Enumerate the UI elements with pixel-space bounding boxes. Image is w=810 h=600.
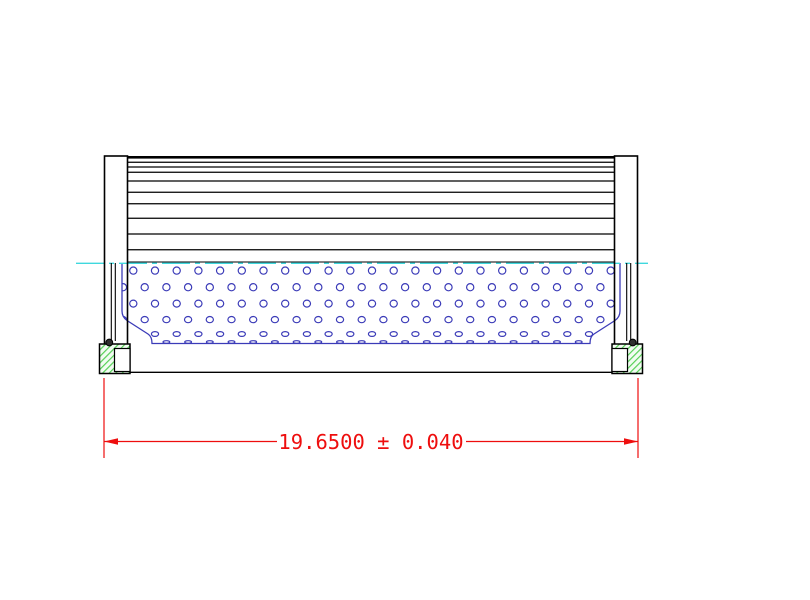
perforation-hole xyxy=(489,341,496,344)
perforation-hole xyxy=(293,317,300,323)
perforation-hole xyxy=(390,267,397,274)
perforation-hole xyxy=(368,332,375,337)
length-dimension: 19.6500 ± 0.040 xyxy=(104,378,638,458)
perforation-hole xyxy=(228,317,235,323)
perforation-hole xyxy=(228,341,235,344)
perforation-hole xyxy=(130,267,137,274)
perforation-hole xyxy=(303,300,310,307)
perforation-hole xyxy=(597,341,604,344)
pleat-top-edge xyxy=(128,156,615,159)
perforation-hole xyxy=(173,300,180,307)
perforation-hole xyxy=(217,332,224,337)
left-seal-flange xyxy=(100,339,131,373)
perforation-hole xyxy=(412,300,419,307)
perforation-hole xyxy=(575,284,582,291)
perforation-hole xyxy=(412,332,419,337)
perforation-hole xyxy=(185,341,192,344)
perforation-hole xyxy=(358,341,365,344)
perforation-hole xyxy=(303,267,310,274)
left-oring xyxy=(106,339,113,346)
perforation-hole xyxy=(477,267,484,274)
perforation-hole xyxy=(163,341,170,344)
left-flange-notch xyxy=(115,349,131,372)
perforation-hole xyxy=(532,284,539,291)
perforation-hole xyxy=(195,267,202,274)
perforation-hole xyxy=(520,300,527,307)
perforation-hole xyxy=(185,284,192,291)
perforation-hole xyxy=(434,267,441,274)
perforation-hole xyxy=(250,284,257,291)
perforation-hole xyxy=(238,300,245,307)
perforation-hole xyxy=(325,300,332,307)
perforation-hole xyxy=(206,317,213,323)
perforation-hole xyxy=(564,332,571,337)
perforation-hole xyxy=(195,332,202,337)
perforation-hole xyxy=(358,284,365,291)
perforation-hole xyxy=(336,317,343,323)
perforation-hole xyxy=(532,317,539,323)
perforation-hole xyxy=(130,332,137,337)
perforation-hole xyxy=(412,267,419,274)
perforation-hole xyxy=(402,284,409,291)
perforation-hole xyxy=(315,284,322,291)
perforation-hole xyxy=(554,341,561,344)
perforation-hole xyxy=(564,300,571,307)
perforation-hole xyxy=(260,332,267,337)
perforation-hole xyxy=(467,284,474,291)
perforation-hole xyxy=(390,332,397,337)
perforation-hole xyxy=(368,267,375,274)
perforation-hole xyxy=(597,317,604,323)
perforation-hole xyxy=(434,300,441,307)
perforation-hole xyxy=(499,300,506,307)
perforation-hole xyxy=(368,300,375,307)
perforation-hole xyxy=(445,284,452,291)
perforation-hole xyxy=(119,284,126,291)
perforation-hole xyxy=(585,267,592,274)
perforation-hole xyxy=(585,332,592,337)
perforation-hole xyxy=(575,341,582,344)
filter-element-drawing: 19.6500 ± 0.040 xyxy=(0,0,810,600)
perforation-hole xyxy=(228,284,235,291)
perforation-hole xyxy=(325,332,332,337)
drawing-canvas: 19.6500 ± 0.040 xyxy=(0,0,810,600)
perforation-hole xyxy=(336,284,343,291)
perforation-hole xyxy=(206,341,213,344)
perforation-hole xyxy=(141,284,148,291)
perforation-hole xyxy=(271,284,278,291)
dimension-text: 19.6500 ± 0.040 xyxy=(278,430,463,454)
perforation-hole xyxy=(250,341,257,344)
perforation-hole xyxy=(467,317,474,323)
perforation-hole xyxy=(520,267,527,274)
right-seal-flange xyxy=(612,339,643,373)
perforation-hole xyxy=(564,267,571,274)
perforation-hole xyxy=(282,332,289,337)
perforation-hole xyxy=(282,300,289,307)
right-flange-notch xyxy=(612,349,628,372)
perforation-hole xyxy=(532,341,539,344)
perforation-hole xyxy=(380,284,387,291)
perforation-hole xyxy=(477,332,484,337)
perforation-hole xyxy=(510,317,517,323)
perforation-hole xyxy=(455,300,462,307)
perforation-hole xyxy=(510,284,517,291)
perforation-hole xyxy=(423,284,430,291)
perforation-hole xyxy=(510,341,517,344)
perforation-hole xyxy=(575,317,582,323)
perforation-hole xyxy=(303,332,310,337)
perforation-hole xyxy=(173,267,180,274)
perforation-hole xyxy=(293,284,300,291)
perforation-hole xyxy=(607,300,614,307)
perforation-hole xyxy=(488,317,495,323)
perforation-hole xyxy=(151,332,158,337)
perforation-hole xyxy=(542,332,549,337)
perforation-hole xyxy=(455,267,462,274)
perforation-hole xyxy=(293,341,300,344)
left-arrowhead xyxy=(104,438,118,445)
perforation-hole xyxy=(347,267,354,274)
perforation-hole xyxy=(402,341,409,344)
perforation-hole xyxy=(585,300,592,307)
perforation-hole xyxy=(217,300,224,307)
perforation-hole xyxy=(499,267,506,274)
perforation-hole xyxy=(271,317,278,323)
perforation-hole xyxy=(163,317,170,323)
perforation-hole xyxy=(467,341,474,344)
perforation-hole xyxy=(260,300,267,307)
perforation-hole xyxy=(402,317,409,323)
perforation-hole xyxy=(250,317,257,323)
perforation-hole xyxy=(607,267,614,274)
perforation-hole xyxy=(423,341,430,344)
perforation-hole xyxy=(217,267,224,274)
perforation-hole xyxy=(141,341,148,344)
perforation-hole xyxy=(445,317,452,323)
perforation-hole xyxy=(238,267,245,274)
perforation-hole xyxy=(542,300,549,307)
perforation-hole xyxy=(325,267,332,274)
perforation-hole xyxy=(120,341,127,344)
perforation-hole xyxy=(315,341,322,344)
perforation-hole xyxy=(445,341,452,344)
perforation-hole xyxy=(553,284,560,291)
perforated-core xyxy=(119,263,620,344)
perforation-hole xyxy=(455,332,462,337)
perforation-hole xyxy=(163,284,170,291)
perforation-hole xyxy=(488,284,495,291)
right-oring xyxy=(629,339,636,346)
perforation-holes xyxy=(119,267,614,343)
perforation-hole xyxy=(380,317,387,323)
perforation-hole xyxy=(423,317,430,323)
perforation-hole xyxy=(151,300,158,307)
perforation-hole xyxy=(347,300,354,307)
perforation-hole xyxy=(173,332,180,337)
perforation-hole xyxy=(185,317,192,323)
perforation-hole xyxy=(477,300,484,307)
perforation-hole xyxy=(141,317,148,323)
perforation-hole xyxy=(272,341,279,344)
perforation-hole xyxy=(206,284,213,291)
perforation-hole xyxy=(358,317,365,323)
perforation-hole xyxy=(597,284,604,291)
cap-seam-lines xyxy=(111,263,630,341)
perforation-hole xyxy=(337,341,344,344)
perforation-hole xyxy=(499,332,506,337)
perforation-hole xyxy=(282,267,289,274)
perforation-hole xyxy=(260,267,267,274)
perforation-hole xyxy=(195,300,202,307)
right-arrowhead xyxy=(624,438,638,445)
pleat-block xyxy=(128,156,615,262)
pleat-fold-lines xyxy=(128,162,615,249)
perforation-hole xyxy=(390,300,397,307)
perforation-hole xyxy=(553,317,560,323)
perforation-hole xyxy=(315,317,322,323)
perforation-hole xyxy=(434,332,441,337)
perforation-hole xyxy=(347,332,354,337)
perforation-hole xyxy=(380,341,387,344)
perforation-hole xyxy=(130,300,137,307)
perforation-hole xyxy=(520,332,527,337)
perforation-hole xyxy=(542,267,549,274)
perforation-hole xyxy=(607,332,614,337)
perforation-hole xyxy=(151,267,158,274)
perforation-hole xyxy=(238,332,245,337)
